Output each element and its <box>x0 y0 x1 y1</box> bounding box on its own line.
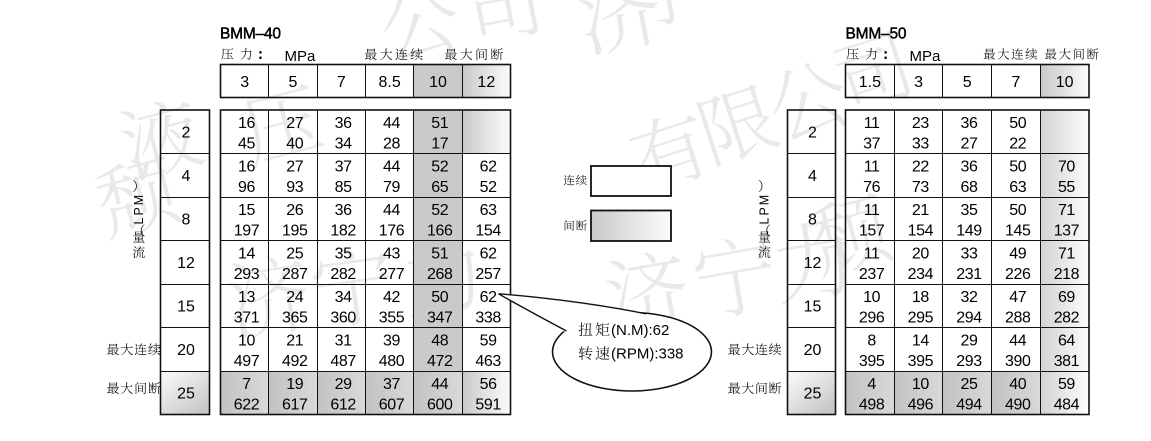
svg-text:17: 17 <box>431 136 448 153</box>
svg-text:288: 288 <box>1005 310 1031 327</box>
svg-text:2: 2 <box>182 125 191 142</box>
svg-text:20: 20 <box>177 342 195 359</box>
svg-text:10: 10 <box>238 333 255 350</box>
svg-text:96: 96 <box>238 179 255 196</box>
svg-text:296: 296 <box>859 310 885 327</box>
svg-text:154: 154 <box>908 223 934 240</box>
svg-text:28: 28 <box>383 136 400 153</box>
svg-text:LPM: LPM <box>757 193 771 225</box>
svg-text:35: 35 <box>961 202 978 219</box>
svg-text:42: 42 <box>383 289 400 306</box>
svg-text:32: 32 <box>961 289 978 306</box>
svg-text:195: 195 <box>282 223 308 240</box>
svg-text:44: 44 <box>383 159 400 176</box>
svg-text:1.5: 1.5 <box>859 74 881 91</box>
svg-text:11: 11 <box>864 202 880 219</box>
svg-text:73: 73 <box>912 179 929 196</box>
svg-text:607: 607 <box>379 397 405 414</box>
svg-text:10: 10 <box>1056 74 1074 91</box>
svg-text:52: 52 <box>480 179 497 196</box>
svg-text:37: 37 <box>863 136 880 153</box>
svg-text:18: 18 <box>912 289 929 306</box>
svg-text:37: 37 <box>383 376 400 393</box>
svg-text:294: 294 <box>956 310 982 327</box>
svg-text:34: 34 <box>335 136 352 153</box>
svg-text:4: 4 <box>182 168 191 185</box>
svg-text:50: 50 <box>1009 202 1026 219</box>
svg-text:22: 22 <box>1009 136 1026 153</box>
svg-text:496: 496 <box>908 397 934 414</box>
svg-text:44: 44 <box>383 202 400 219</box>
svg-text:59: 59 <box>480 333 497 350</box>
svg-text:40: 40 <box>1009 376 1026 393</box>
svg-text:287: 287 <box>282 266 308 283</box>
svg-text:622: 622 <box>234 397 260 414</box>
svg-text:3: 3 <box>240 74 249 91</box>
svg-text:176: 176 <box>379 223 405 240</box>
svg-text:16: 16 <box>238 159 255 176</box>
svg-text:52: 52 <box>431 202 448 219</box>
svg-text:4: 4 <box>867 376 876 393</box>
svg-text:33: 33 <box>961 246 978 263</box>
svg-text:52: 52 <box>431 159 448 176</box>
svg-text:8: 8 <box>182 212 191 229</box>
svg-text:50: 50 <box>1009 159 1026 176</box>
svg-text:12: 12 <box>177 255 195 272</box>
svg-text:480: 480 <box>379 353 405 370</box>
svg-text:338: 338 <box>475 310 501 327</box>
svg-text:154: 154 <box>475 223 501 240</box>
svg-text:44: 44 <box>383 115 400 132</box>
svg-text:390: 390 <box>1005 353 1031 370</box>
svg-text:37: 37 <box>335 159 352 176</box>
svg-text:29: 29 <box>335 376 352 393</box>
svg-text:11: 11 <box>864 159 880 176</box>
svg-text:490: 490 <box>1005 397 1031 414</box>
svg-text:56: 56 <box>480 376 497 393</box>
svg-text:76: 76 <box>863 179 880 196</box>
svg-text:10: 10 <box>863 289 880 306</box>
svg-text:62: 62 <box>480 289 497 306</box>
svg-text:59: 59 <box>1058 376 1075 393</box>
svg-text:237: 237 <box>859 266 885 283</box>
svg-text:36: 36 <box>961 115 978 132</box>
svg-text:MPa: MPa <box>910 48 942 65</box>
svg-text:40: 40 <box>286 136 303 153</box>
svg-text:85: 85 <box>335 179 352 196</box>
svg-text:70: 70 <box>1058 159 1075 176</box>
svg-text:34: 34 <box>335 289 352 306</box>
svg-text:10: 10 <box>912 376 929 393</box>
svg-text:137: 137 <box>1054 223 1080 240</box>
svg-text:20: 20 <box>912 246 929 263</box>
svg-text:7: 7 <box>337 74 346 91</box>
svg-text:27: 27 <box>286 115 303 132</box>
svg-text:29: 29 <box>961 333 978 350</box>
svg-text:21: 21 <box>912 202 929 219</box>
svg-text:51: 51 <box>431 115 448 132</box>
svg-text:182: 182 <box>330 223 356 240</box>
svg-text:395: 395 <box>859 353 885 370</box>
svg-text:494: 494 <box>956 397 982 414</box>
svg-text:79: 79 <box>383 179 400 196</box>
svg-text:69: 69 <box>1058 289 1075 306</box>
svg-text:355: 355 <box>379 310 405 327</box>
svg-text:26: 26 <box>286 202 303 219</box>
svg-text:71: 71 <box>1058 246 1075 263</box>
svg-text:51: 51 <box>431 246 448 263</box>
svg-text:497: 497 <box>234 353 260 370</box>
svg-text:12: 12 <box>477 74 495 91</box>
svg-text:45: 45 <box>238 136 255 153</box>
svg-text:47: 47 <box>1009 289 1026 306</box>
svg-text:33: 33 <box>912 136 929 153</box>
svg-text:395: 395 <box>908 353 934 370</box>
svg-text:23: 23 <box>912 115 929 132</box>
svg-text:5: 5 <box>289 74 298 91</box>
svg-text:50: 50 <box>431 289 448 306</box>
svg-text:282: 282 <box>1054 310 1080 327</box>
svg-text:35: 35 <box>335 246 352 263</box>
svg-text:25: 25 <box>177 386 195 403</box>
svg-text:24: 24 <box>286 289 303 306</box>
svg-text:71: 71 <box>1058 202 1075 219</box>
svg-text:157: 157 <box>859 223 885 240</box>
svg-text:472: 472 <box>427 353 453 370</box>
svg-text:27: 27 <box>286 159 303 176</box>
svg-text:295: 295 <box>908 310 934 327</box>
svg-text:492: 492 <box>282 353 308 370</box>
svg-text:11: 11 <box>864 115 880 132</box>
svg-text:463: 463 <box>475 353 501 370</box>
svg-text:617: 617 <box>282 397 308 414</box>
svg-text:39: 39 <box>383 333 400 350</box>
svg-text:50: 50 <box>1009 115 1026 132</box>
svg-text:(N.M):62: (N.M):62 <box>611 322 669 339</box>
svg-text:15: 15 <box>177 299 195 316</box>
svg-text:BMM–50: BMM–50 <box>846 26 907 43</box>
svg-text:22: 22 <box>912 159 929 176</box>
svg-text:65: 65 <box>431 179 448 196</box>
svg-text:365: 365 <box>282 310 308 327</box>
svg-text:64: 64 <box>1058 333 1075 350</box>
svg-text:8: 8 <box>867 333 876 350</box>
svg-text:44: 44 <box>1009 333 1026 350</box>
svg-text:(RPM):338: (RPM):338 <box>611 346 684 363</box>
svg-text:371: 371 <box>234 310 260 327</box>
svg-text:5: 5 <box>963 74 972 91</box>
svg-text:55: 55 <box>1058 179 1075 196</box>
svg-text:487: 487 <box>330 353 356 370</box>
svg-text:197: 197 <box>234 223 260 240</box>
svg-text:293: 293 <box>956 353 982 370</box>
svg-text:25: 25 <box>961 376 978 393</box>
svg-text:BMM–40: BMM–40 <box>220 26 281 43</box>
svg-text:600: 600 <box>427 397 453 414</box>
svg-text:498: 498 <box>859 397 885 414</box>
svg-text:43: 43 <box>383 246 400 263</box>
svg-text:282: 282 <box>330 266 356 283</box>
svg-text:16: 16 <box>238 115 255 132</box>
svg-text:381: 381 <box>1054 353 1080 370</box>
svg-text:12: 12 <box>804 255 822 272</box>
svg-text:62: 62 <box>480 246 497 263</box>
svg-text:234: 234 <box>908 266 934 283</box>
svg-text:7: 7 <box>242 376 251 393</box>
svg-text:484: 484 <box>1054 397 1080 414</box>
svg-text:MPa: MPa <box>285 48 317 65</box>
svg-text:15: 15 <box>238 202 255 219</box>
svg-text:36: 36 <box>335 202 352 219</box>
svg-text:4: 4 <box>808 168 817 185</box>
svg-text:360: 360 <box>330 310 356 327</box>
svg-text:21: 21 <box>286 333 303 350</box>
svg-text:LPM: LPM <box>132 193 146 225</box>
svg-text:36: 36 <box>335 115 352 132</box>
svg-text:25: 25 <box>286 246 303 263</box>
svg-text:36: 36 <box>961 159 978 176</box>
svg-text:218: 218 <box>1054 266 1080 283</box>
svg-text:2: 2 <box>808 125 817 142</box>
svg-text:612: 612 <box>330 397 356 414</box>
svg-text:49: 49 <box>1009 246 1026 263</box>
svg-text:347: 347 <box>427 310 453 327</box>
svg-text:7: 7 <box>1011 74 1020 91</box>
svg-text:257: 257 <box>475 266 501 283</box>
svg-text:63: 63 <box>1009 179 1026 196</box>
svg-text:63: 63 <box>480 202 497 219</box>
svg-text:10: 10 <box>429 74 447 91</box>
svg-text:11: 11 <box>864 246 880 263</box>
svg-text:231: 231 <box>956 266 982 283</box>
svg-text:14: 14 <box>912 333 929 350</box>
svg-text:13: 13 <box>238 289 255 306</box>
svg-text:145: 145 <box>1005 223 1031 240</box>
svg-text:44: 44 <box>431 376 448 393</box>
svg-text:293: 293 <box>234 266 260 283</box>
svg-text:62: 62 <box>480 159 497 176</box>
svg-text:27: 27 <box>961 136 978 153</box>
svg-text:68: 68 <box>961 179 978 196</box>
svg-text:48: 48 <box>431 333 448 350</box>
svg-text:277: 277 <box>379 266 405 283</box>
svg-text:268: 268 <box>427 266 453 283</box>
svg-text:15: 15 <box>804 299 822 316</box>
svg-text:166: 166 <box>427 223 453 240</box>
svg-text:3: 3 <box>914 74 923 91</box>
svg-text:93: 93 <box>286 179 303 196</box>
svg-text:8.5: 8.5 <box>379 74 401 91</box>
svg-text:149: 149 <box>956 223 982 240</box>
svg-text:25: 25 <box>804 386 822 403</box>
svg-text:591: 591 <box>475 397 501 414</box>
svg-text:19: 19 <box>286 376 303 393</box>
svg-text:20: 20 <box>804 342 822 359</box>
svg-text:226: 226 <box>1005 266 1031 283</box>
svg-text:14: 14 <box>238 246 255 263</box>
svg-text:8: 8 <box>808 212 817 229</box>
svg-text:31: 31 <box>335 333 352 350</box>
